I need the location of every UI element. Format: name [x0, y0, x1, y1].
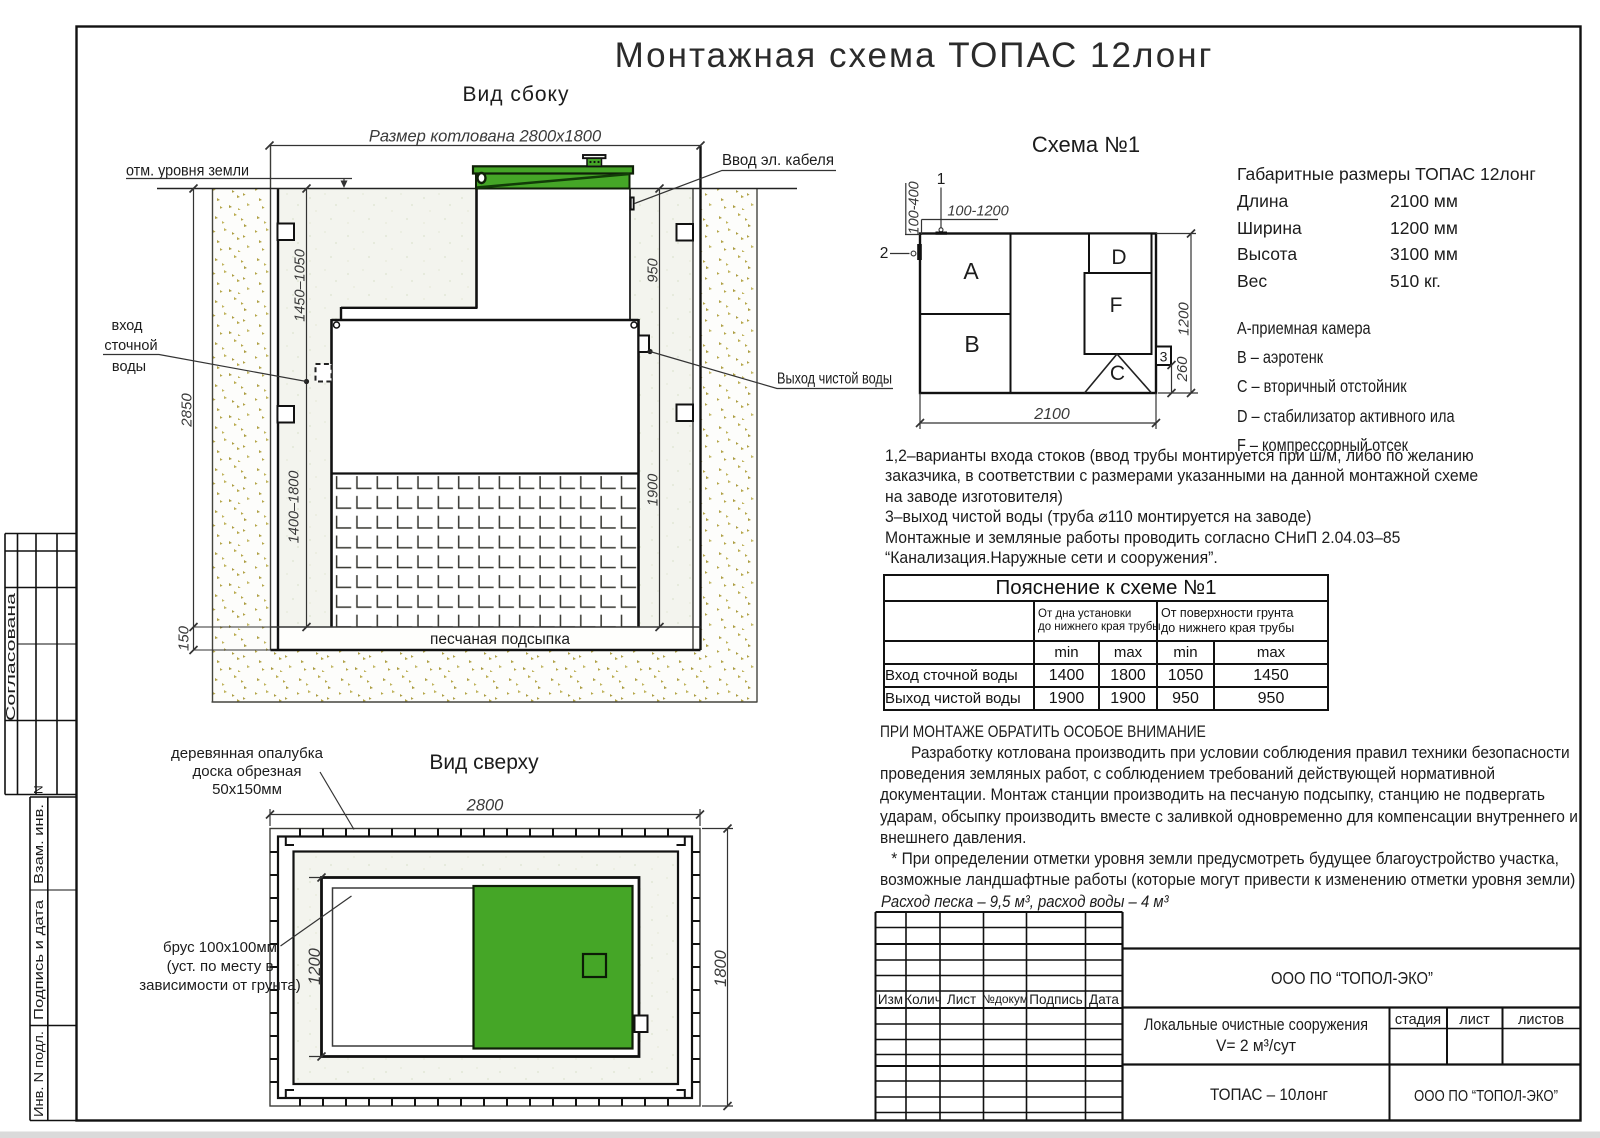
svg-text:листов: листов: [1518, 1012, 1564, 1028]
svg-text:Колич: Колич: [904, 992, 942, 1007]
svg-text:Лист: Лист: [947, 992, 976, 1007]
svg-text:№докум: №докум: [982, 992, 1028, 1006]
svg-text:ТОПАС – 10лонг: ТОПАС – 10лонг: [1210, 1085, 1328, 1104]
svg-text:V= 2 м³/сут: V= 2 м³/сут: [1216, 1037, 1296, 1055]
svg-text:Изм: Изм: [878, 992, 903, 1007]
svg-text:стадия: стадия: [1395, 1012, 1441, 1028]
svg-text:ООО ПО “ТОПОЛ-ЭКО”: ООО ПО “ТОПОЛ-ЭКО”: [1414, 1088, 1558, 1105]
svg-text:ООО ПО “ТОПОЛ-ЭКО”: ООО ПО “ТОПОЛ-ЭКО”: [1271, 968, 1433, 988]
svg-text:Локальные очистные сооружения: Локальные очистные сооружения: [1144, 1016, 1368, 1034]
svg-text:лист: лист: [1459, 1012, 1490, 1028]
svg-text:Дата: Дата: [1089, 992, 1119, 1007]
svg-text:Подпись: Подпись: [1029, 992, 1082, 1007]
